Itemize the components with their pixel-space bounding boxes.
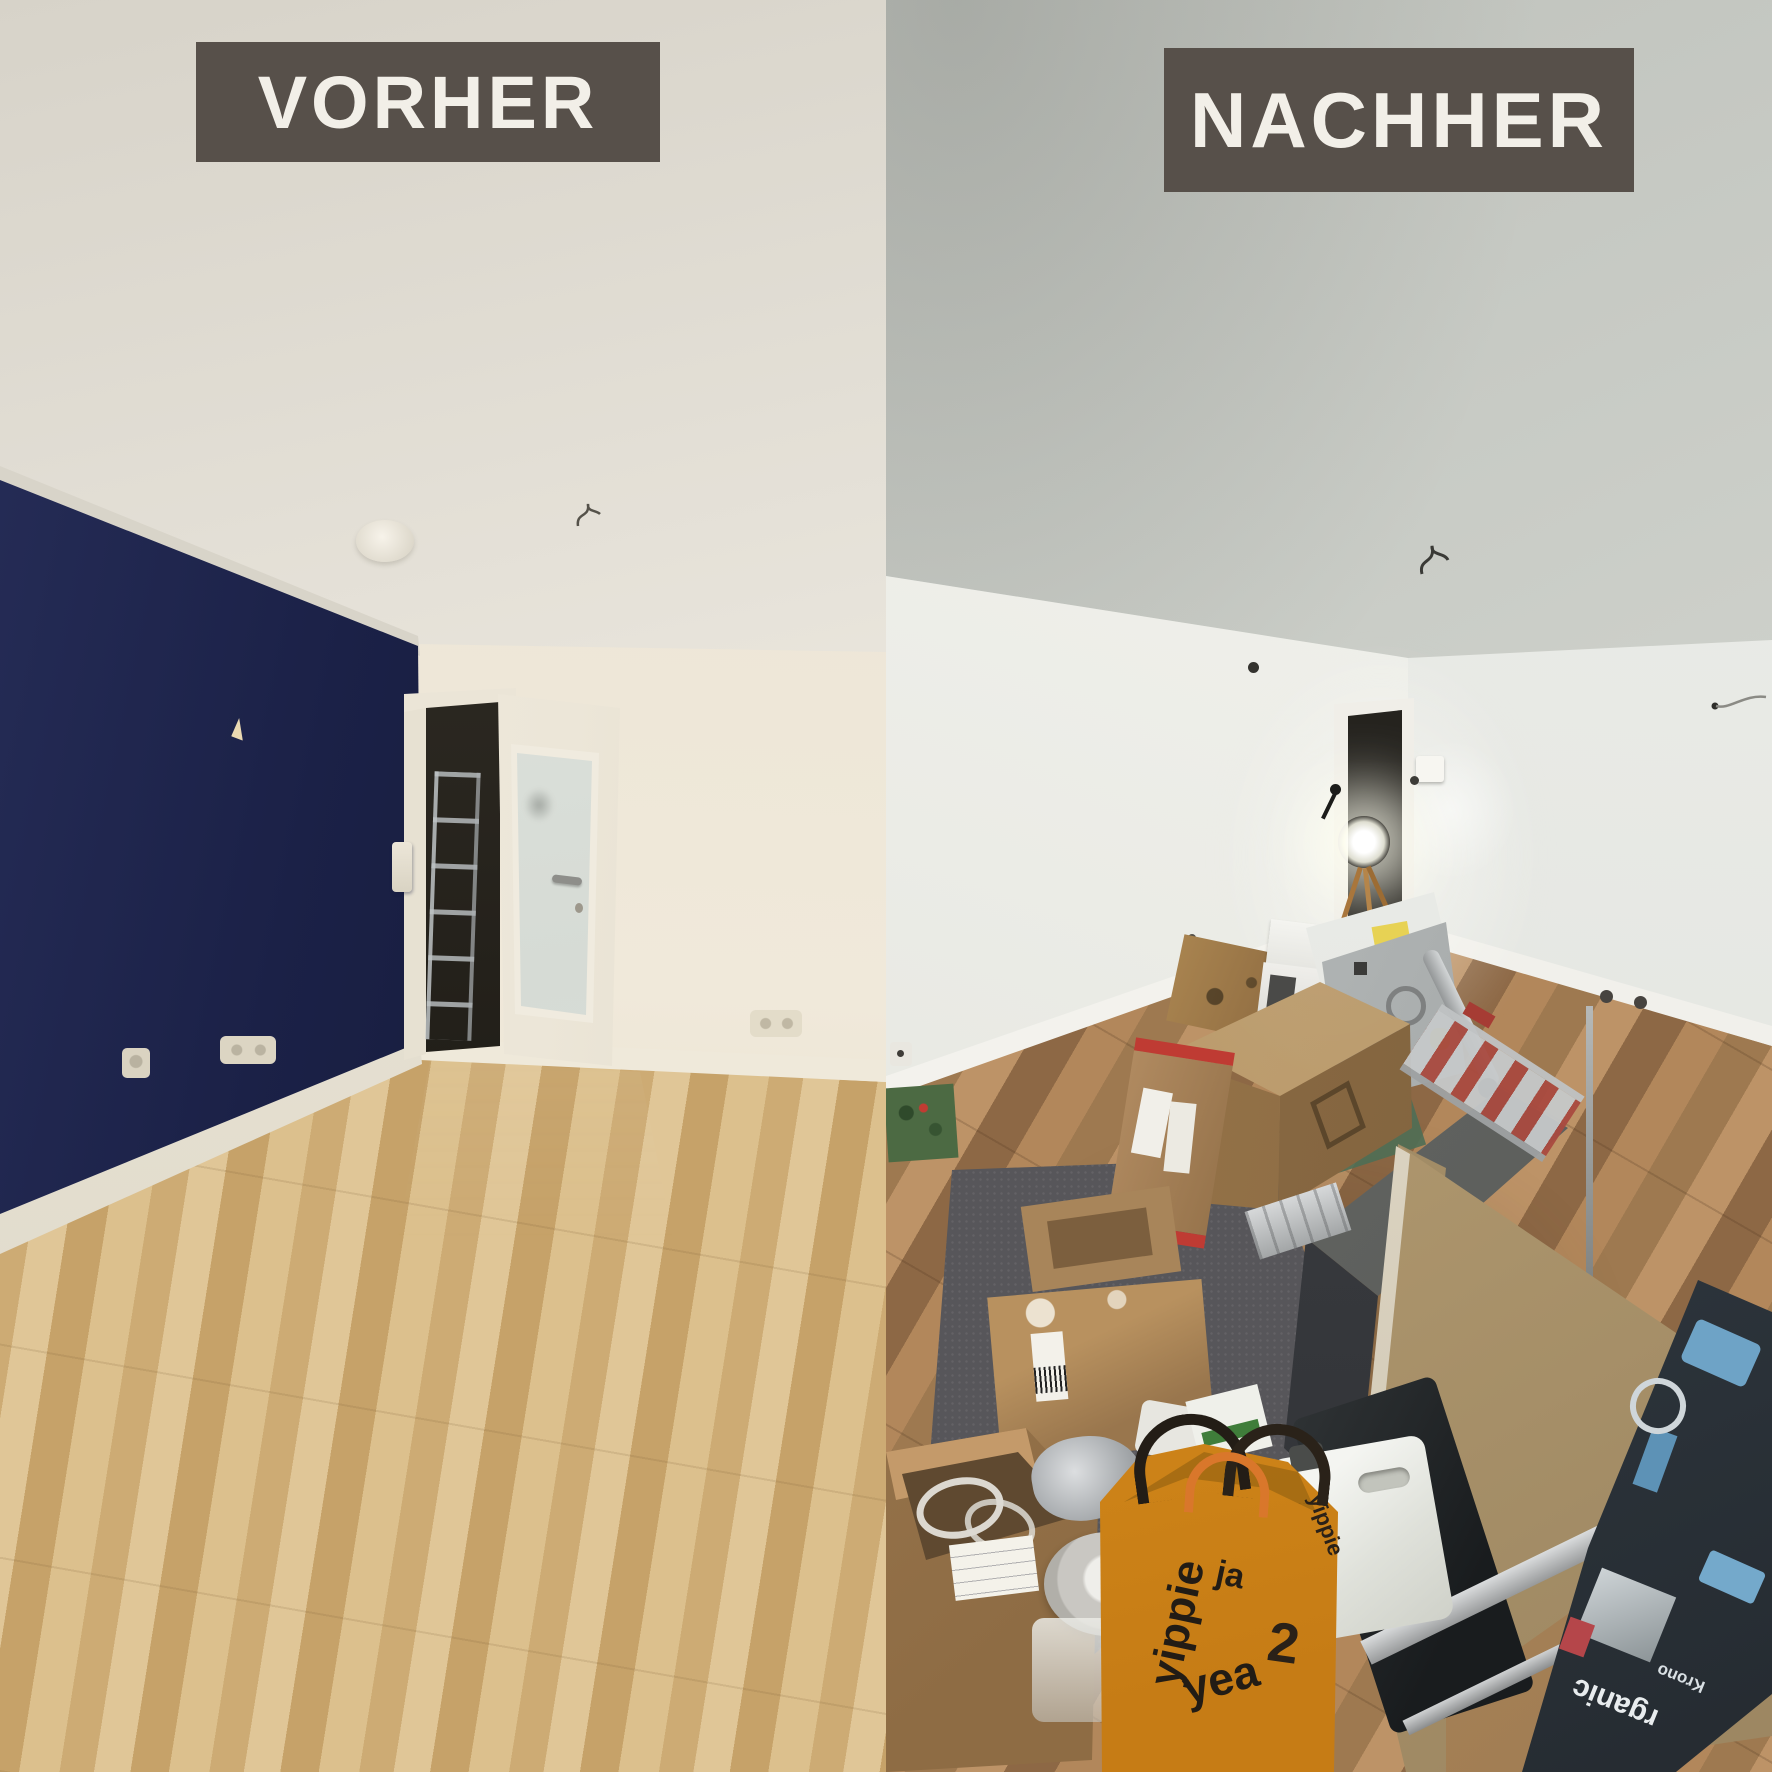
after-photo: rganic Krono yippie yippie ja yea 2: [886, 0, 1772, 1772]
before-label-text: VORHER: [258, 60, 599, 145]
after-wall-dot: [1248, 662, 1259, 673]
before-outlet-facing-wall: [750, 1010, 802, 1037]
before-label: VORHER: [196, 42, 660, 162]
thin-metal-rod: [1586, 1006, 1593, 1306]
appliance-logo: [1354, 962, 1367, 975]
before-hallway-ladder: [425, 771, 480, 1040]
after-wall-cable: [1708, 686, 1770, 714]
before-door-keyhole: [575, 903, 583, 913]
after-wall-fixture: [1416, 756, 1444, 782]
after-outlet-left-hole: [897, 1050, 904, 1057]
after-label-text: NACHHER: [1190, 75, 1608, 166]
after-wall-hole: [1410, 776, 1419, 785]
open-flap-box-interior: [1047, 1207, 1153, 1268]
green-power-tool: [886, 1084, 958, 1163]
before-glass-smudge: [524, 788, 554, 822]
before-outlet-double: [220, 1036, 276, 1064]
after-ceiling-wire: [1414, 540, 1454, 580]
after-outlet-hole-1: [1600, 990, 1613, 1003]
after-outlet-hole-2: [1634, 996, 1647, 1009]
smoke-detector-icon: [356, 520, 414, 562]
work-light-icon: [1338, 816, 1390, 868]
handwritten-note: [949, 1535, 1039, 1601]
glass-jar: [1032, 1618, 1112, 1722]
before-photo: VORHER: [0, 0, 886, 1772]
after-label: NACHHER: [1164, 48, 1634, 192]
before-after-collage: VORHER: [0, 0, 1772, 1772]
before-ceiling-wire: [574, 500, 604, 530]
barcode-label: [1031, 1331, 1069, 1402]
before-outlet-single: [122, 1048, 150, 1078]
before-light-switch: [392, 842, 412, 892]
